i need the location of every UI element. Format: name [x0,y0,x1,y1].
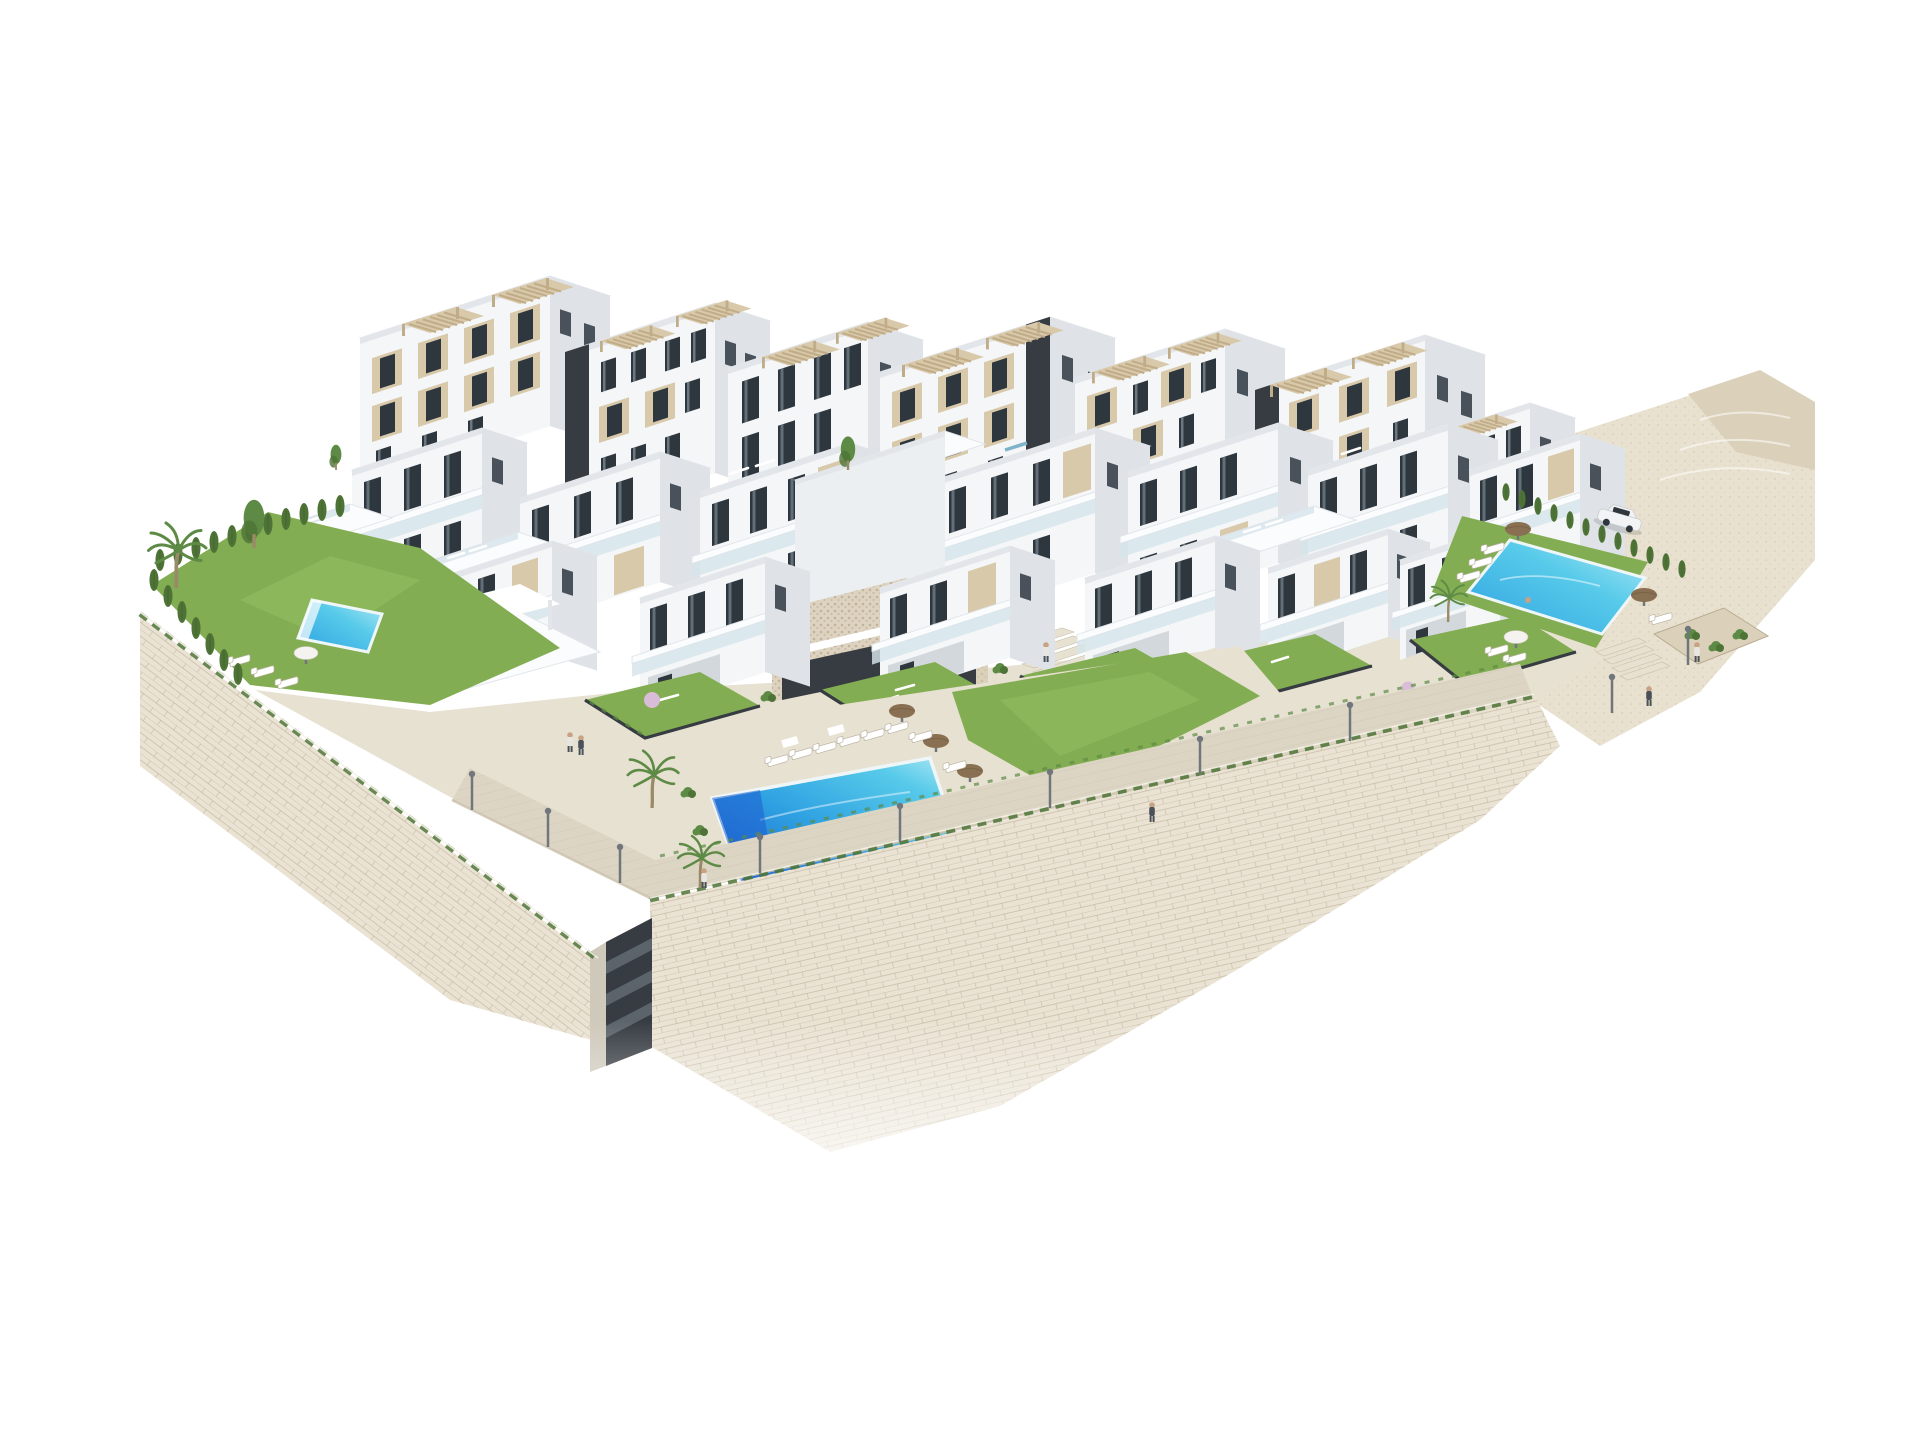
architectural-render [0,0,1920,1440]
bottom-fade [0,1020,1920,1280]
render-canvas [0,0,1920,1440]
swimmer [1525,597,1531,603]
blossom-tree [644,692,660,708]
